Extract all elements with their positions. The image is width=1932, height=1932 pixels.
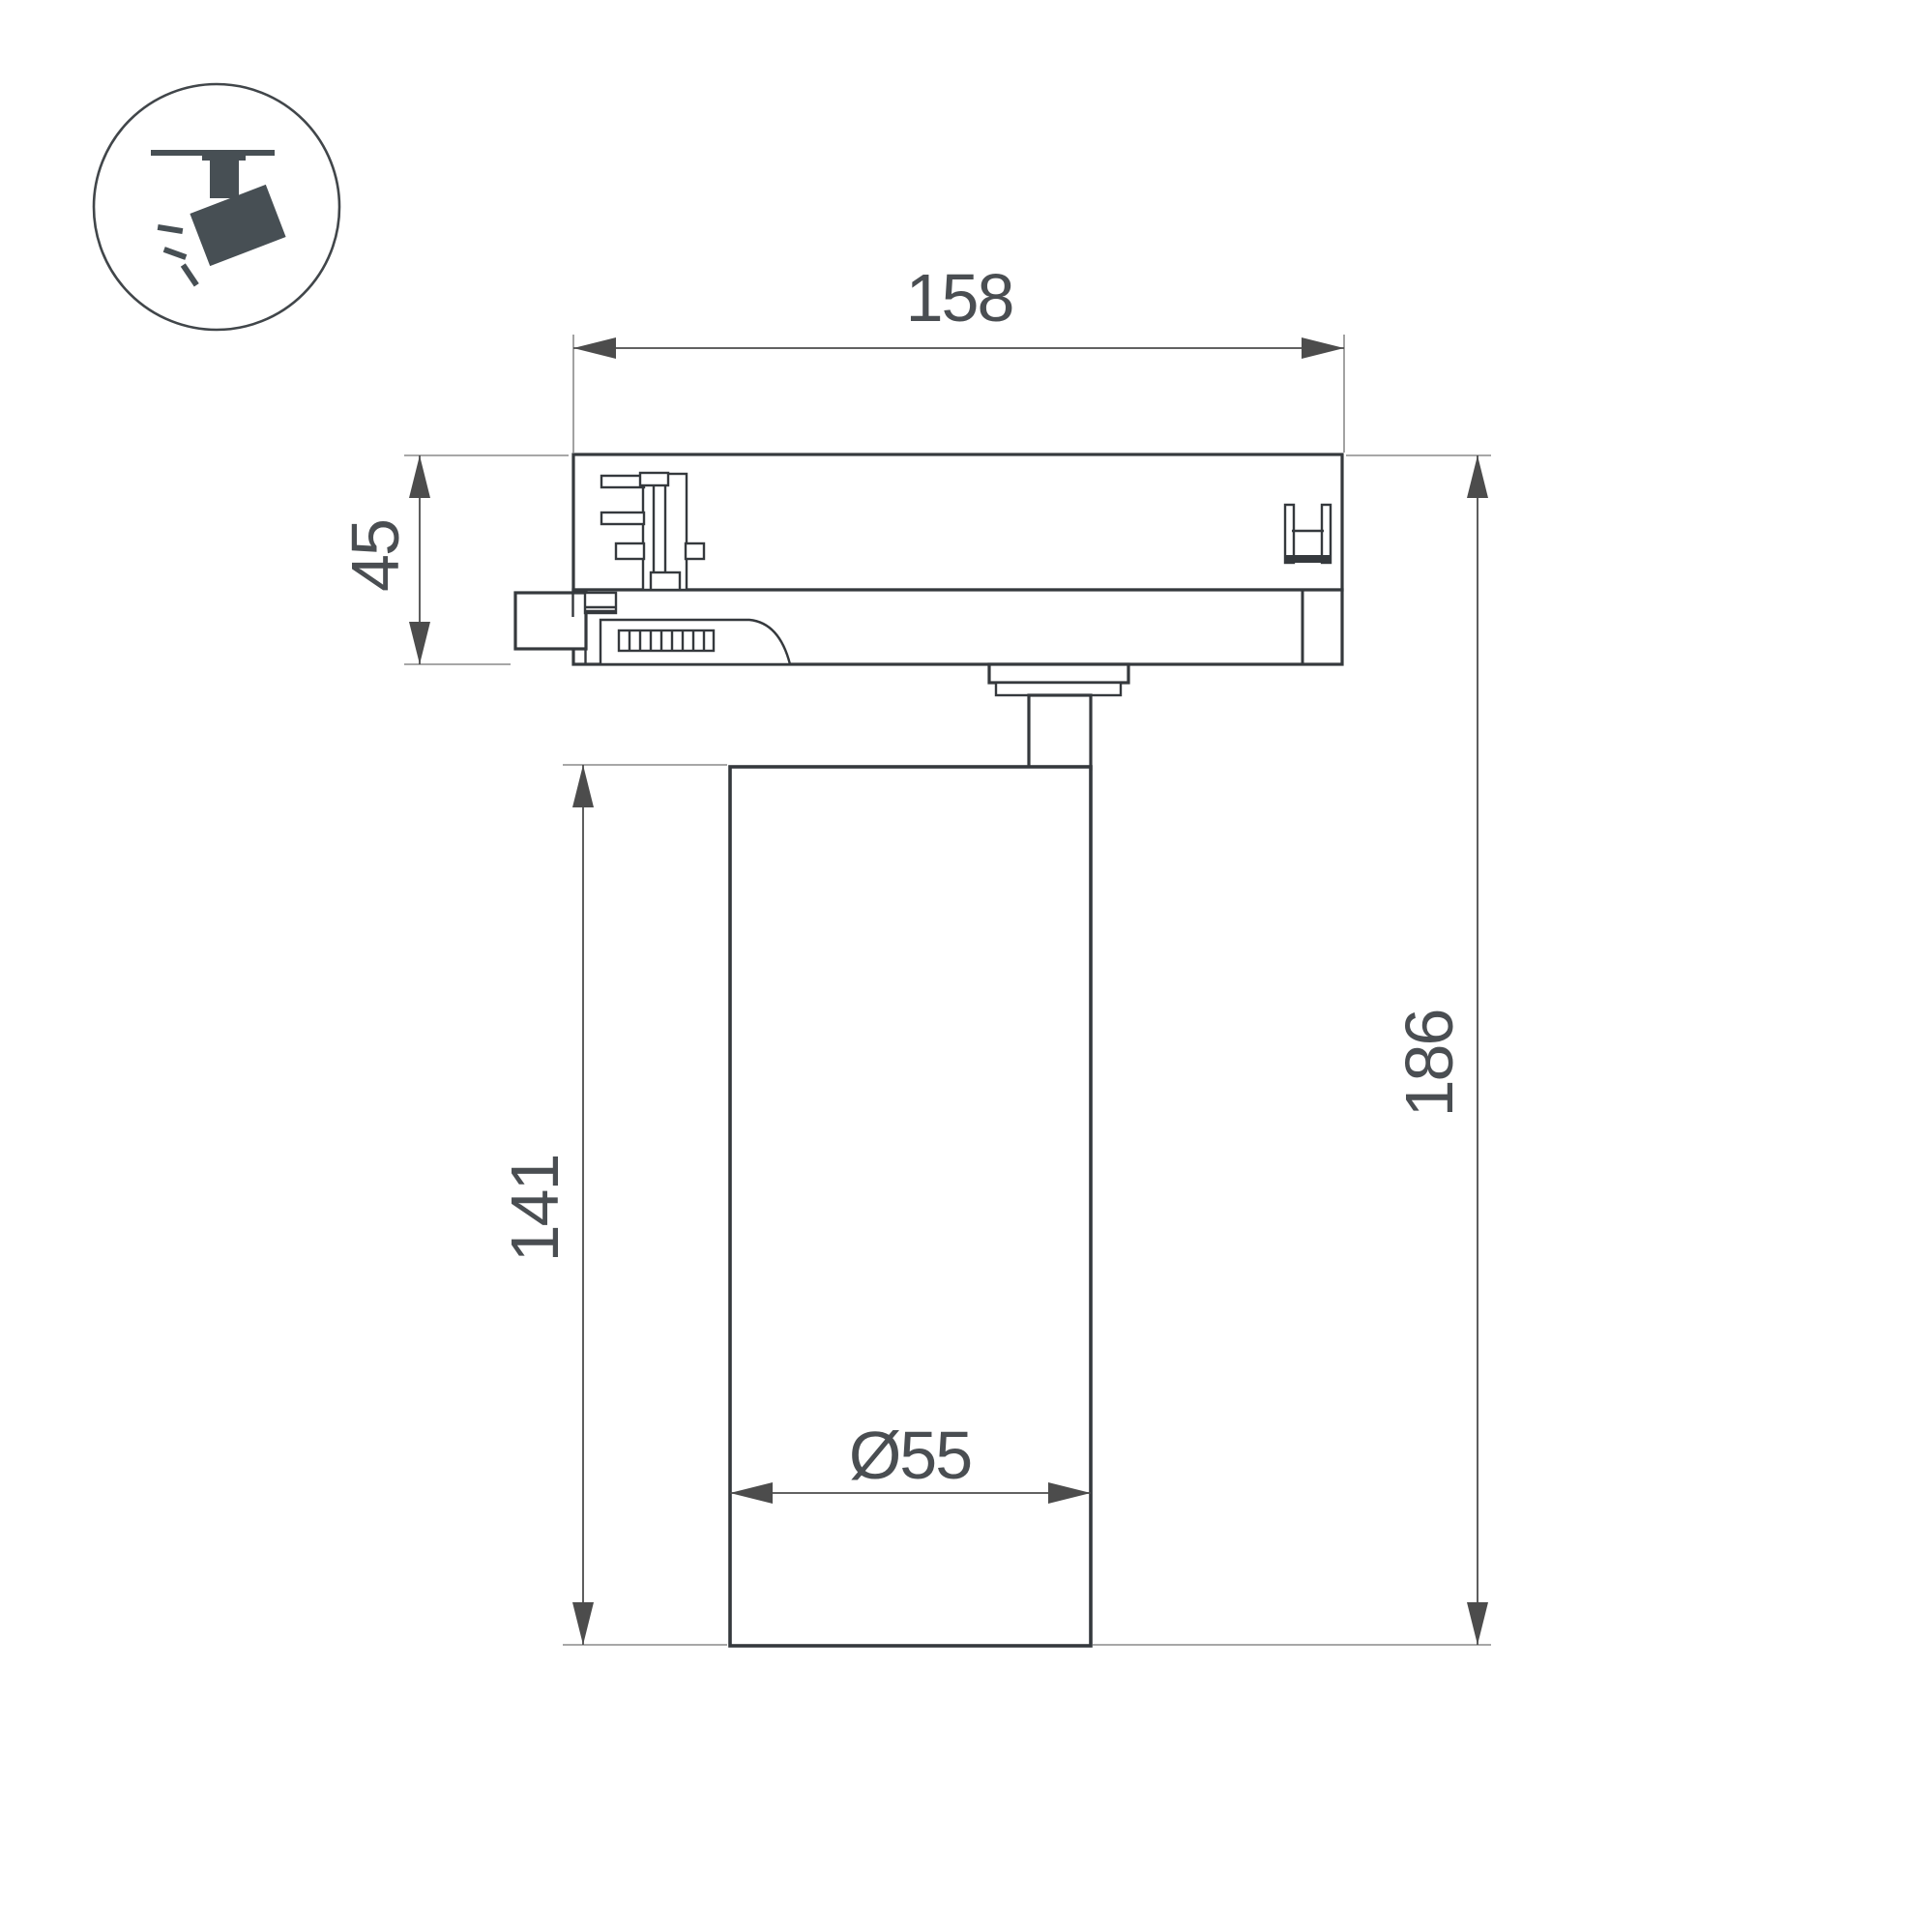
dimension-label-186: 186 [1391,1010,1467,1118]
contact-prong-middle [601,512,644,524]
dimension-label-141: 141 [497,1156,572,1263]
dimension-label-158: 158 [906,260,1013,336]
icon-mount-stem [210,153,239,198]
dimension-body-height: 141 [497,765,727,1645]
arrow-up [572,765,594,807]
contact-foot [651,572,680,590]
arrow-down [572,1602,594,1645]
arrow-left [573,337,616,359]
slider-grip-ribs [619,630,714,651]
track-light-badge [94,84,339,330]
arrow-right [1302,337,1344,359]
arrow-up [1467,455,1488,498]
joint-plate-upper [989,664,1128,683]
arrow-down [1467,1602,1488,1645]
u-clip-right-leg [1322,505,1331,563]
lamp-body-drawing [730,664,1128,1646]
joint-plate-lower [996,683,1121,695]
contact-prong-top [601,476,644,487]
drawing-canvas: 158 45 141 186 Ø55 [0,0,1932,1932]
arrow-up [409,455,430,498]
contact-prong-bottom [616,543,644,559]
dimension-adapter-width: 158 [573,260,1344,453]
contact-right-step [686,543,704,559]
arrow-down [409,622,430,664]
lamp-cylinder-body [730,767,1091,1646]
dimension-label-45: 45 [337,520,413,592]
joint-stem [1029,695,1091,769]
grip-frame [619,630,714,651]
u-clip-left-leg [1285,505,1294,563]
adapter-latch-block [515,593,586,649]
contact-cap [640,473,668,485]
dimension-label-d55: Ø55 [849,1418,971,1493]
adapter-upper-box [573,454,1342,590]
u-clip-bottom-bar [1285,555,1331,563]
contact-center-rod [654,484,665,574]
track-adapter-drawing [515,454,1342,664]
